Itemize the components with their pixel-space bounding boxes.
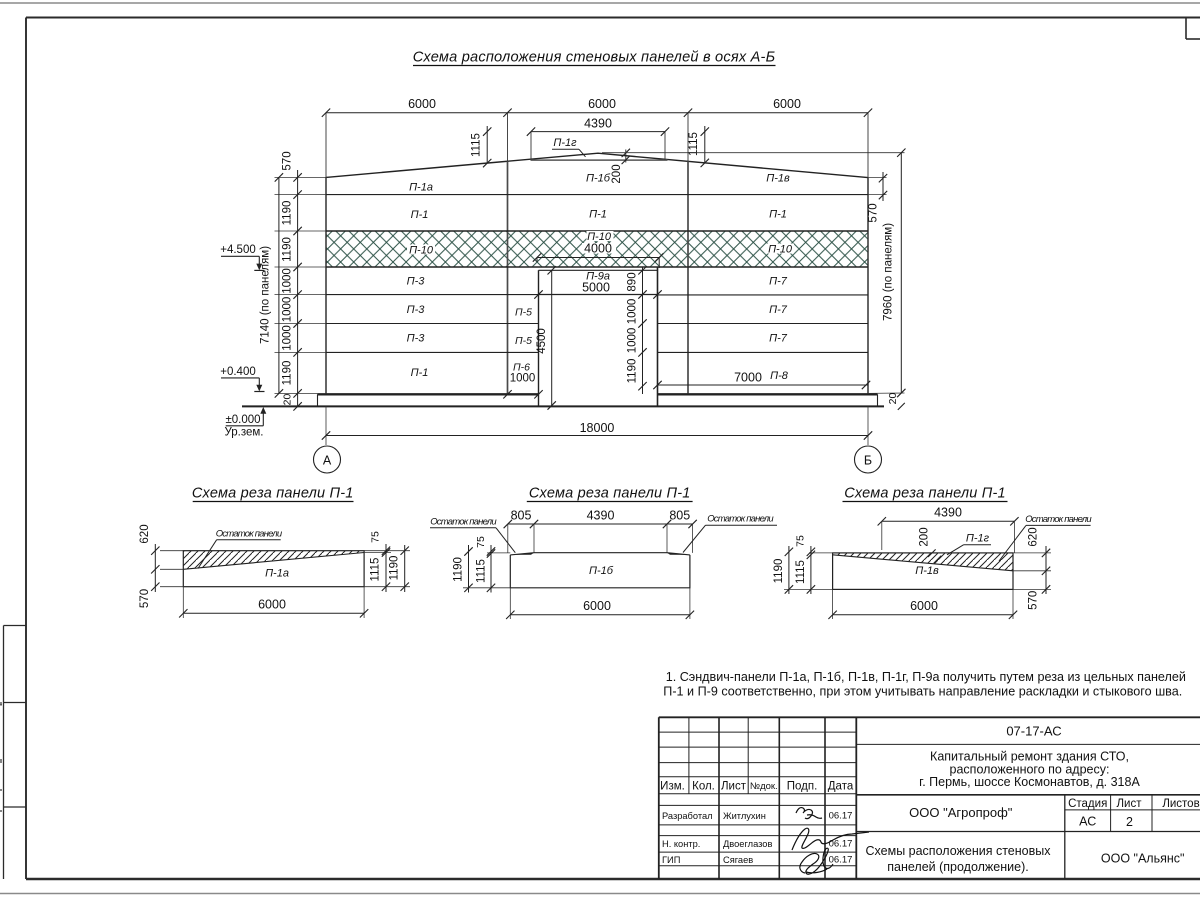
svg-text:Лист: Лист — [1117, 798, 1143, 810]
svg-text:Ур.зем.: Ур.зем. — [224, 427, 263, 439]
svg-text:Схема реза панели П-1: Схема реза панели П-1 — [529, 486, 691, 502]
svg-text:1115: 1115 — [370, 558, 382, 582]
svg-text:5000: 5000 — [582, 281, 610, 295]
svg-text:П-5: П-5 — [515, 335, 532, 347]
svg-text:Остаток панели: Остаток панели — [707, 514, 774, 525]
svg-text:890: 890 — [627, 272, 639, 291]
svg-text:1000: 1000 — [627, 328, 639, 354]
svg-text:П-10: П-10 — [768, 244, 793, 256]
svg-text:4390: 4390 — [934, 506, 962, 520]
svg-text:г. Пермь, шоссе Космонавтов, д: г. Пермь, шоссе Космонавтов, д. 318А — [919, 775, 1140, 789]
svg-text:Сягаев: Сягаев — [723, 855, 753, 865]
svg-text:200: 200 — [919, 527, 931, 546]
svg-text:2: 2 — [1126, 815, 1133, 829]
svg-text:П-1: П-1 — [769, 209, 787, 221]
svg-text:Остаток панели: Остаток панели — [430, 517, 497, 528]
svg-text:П-1а: П-1а — [409, 182, 433, 194]
svg-text:805: 805 — [669, 509, 690, 523]
svg-text:П-5: П-5 — [515, 307, 532, 319]
svg-text:ГИП: ГИП — [662, 855, 680, 865]
svg-text:Схема реза панели П-1: Схема реза панели П-1 — [192, 486, 354, 502]
svg-text:7960 (по панелям): 7960 (по панелям) — [883, 223, 895, 321]
svg-text:1190: 1190 — [453, 557, 465, 582]
svg-text:Стадия: Стадия — [1068, 798, 1107, 810]
svg-text:П-10: П-10 — [409, 245, 434, 257]
svg-text:1000: 1000 — [627, 299, 639, 325]
svg-text:805: 805 — [511, 509, 532, 523]
svg-text:Листов: Листов — [1162, 798, 1199, 810]
svg-text:Схема реза панели П-1: Схема реза панели П-1 — [844, 486, 1006, 502]
svg-text:06.17: 06.17 — [829, 854, 853, 865]
svg-text:1115: 1115 — [471, 133, 483, 157]
svg-text:Схема расположения стеновых па: Схема расположения стеновых панелей в ос… — [413, 50, 776, 66]
svg-text:П-3: П-3 — [407, 304, 426, 316]
svg-text:1000: 1000 — [282, 325, 294, 351]
svg-text:Разработал: Разработал — [662, 811, 713, 821]
svg-text:Дата: Дата — [828, 781, 854, 793]
svg-text:Лист: Лист — [721, 781, 747, 793]
svg-text:620: 620 — [1028, 527, 1040, 546]
svg-text:6000: 6000 — [583, 599, 611, 613]
svg-text:П-7: П-7 — [769, 276, 788, 288]
svg-text:4000: 4000 — [584, 242, 612, 256]
svg-text:18000: 18000 — [580, 421, 615, 435]
svg-text:Подп.: Подп. — [787, 781, 818, 793]
svg-text:1115: 1115 — [476, 559, 488, 583]
svg-text:Изм.: Изм. — [660, 781, 685, 793]
svg-text:панелей (продолжение).: панелей (продолжение). — [887, 860, 1028, 874]
svg-text:П-1г: П-1г — [966, 533, 990, 545]
svg-text:ООО "Агропроф": ООО "Агропроф" — [909, 805, 1013, 820]
svg-text:75: 75 — [370, 531, 382, 543]
svg-text:570: 570 — [139, 589, 151, 608]
svg-text:1000: 1000 — [282, 297, 294, 323]
svg-text:6000: 6000 — [408, 97, 436, 111]
svg-text:570: 570 — [282, 151, 294, 170]
svg-text:4390: 4390 — [584, 117, 612, 131]
svg-text:1000: 1000 — [282, 268, 294, 294]
svg-text:А: А — [323, 454, 332, 468]
svg-text:1. Сэндвич-панели П-1а, П-1б,: 1. Сэндвич-панели П-1а, П-1б, П-1в, П-1г… — [666, 670, 1186, 684]
svg-text:П-1 и П-9 соответственно, при: П-1 и П-9 соответственно, при этом учиты… — [663, 684, 1182, 698]
svg-text:1190: 1190 — [282, 237, 294, 262]
svg-text:1000: 1000 — [510, 373, 536, 385]
svg-text:П-1б: П-1б — [586, 173, 611, 185]
svg-text:200: 200 — [611, 164, 623, 183]
svg-text:20: 20 — [282, 394, 294, 406]
svg-text:Н. контр.: Н. контр. — [662, 839, 700, 849]
svg-text:Капитальный ремонт здания СТО,: Капитальный ремонт здания СТО, — [930, 749, 1129, 763]
svg-text:06.17: 06.17 — [829, 811, 853, 822]
svg-text:7140 (по панелям): 7140 (по панелям) — [260, 246, 272, 344]
svg-text:П-3: П-3 — [407, 276, 426, 288]
svg-text:6000: 6000 — [258, 598, 286, 612]
svg-text:П-7: П-7 — [769, 304, 788, 316]
svg-text:1190: 1190 — [282, 361, 294, 386]
svg-text:1190: 1190 — [389, 556, 401, 581]
svg-text:+4.500: +4.500 — [220, 244, 256, 256]
svg-text:1190: 1190 — [773, 559, 785, 584]
svg-text:6000: 6000 — [588, 97, 616, 111]
svg-text:20: 20 — [887, 393, 899, 405]
svg-text:П-1а: П-1а — [265, 568, 289, 580]
svg-text:П-1в: П-1в — [915, 565, 939, 577]
svg-text:П-8: П-8 — [770, 370, 789, 382]
svg-text:4390: 4390 — [587, 509, 615, 523]
svg-text:6000: 6000 — [773, 97, 801, 111]
svg-text:П-1в: П-1в — [766, 173, 790, 185]
svg-text:570: 570 — [1028, 591, 1040, 610]
svg-text:6000: 6000 — [910, 599, 938, 613]
svg-text:1115: 1115 — [795, 560, 807, 584]
svg-text:№док.: №док. — [750, 781, 778, 792]
svg-text:75: 75 — [475, 536, 487, 548]
svg-text:ООО "Альянс": ООО "Альянс" — [1101, 852, 1185, 866]
svg-text:П-1г: П-1г — [553, 137, 577, 149]
svg-text:Житлухин: Житлухин — [723, 811, 766, 821]
svg-text:АС: АС — [1079, 815, 1096, 829]
svg-text:Кол.: Кол. — [692, 781, 715, 793]
svg-text:±0.000: ±0.000 — [225, 414, 260, 426]
svg-text:П-7: П-7 — [769, 333, 788, 345]
svg-text:П-1: П-1 — [589, 209, 607, 221]
svg-text:Двоеглазов: Двоеглазов — [723, 839, 772, 849]
svg-text:П-1: П-1 — [411, 209, 429, 221]
svg-text:П-3: П-3 — [407, 333, 426, 345]
svg-text:4500: 4500 — [536, 328, 548, 354]
svg-text:1190: 1190 — [282, 201, 294, 226]
svg-text:Б: Б — [864, 454, 872, 468]
svg-text:620: 620 — [139, 524, 151, 543]
svg-text:П-1б: П-1б — [589, 565, 614, 577]
svg-text:75: 75 — [795, 535, 807, 547]
svg-text:7000: 7000 — [734, 370, 762, 384]
svg-text:+0.400: +0.400 — [220, 366, 256, 378]
svg-text:1190: 1190 — [627, 359, 639, 384]
svg-text:07-17-АС: 07-17-АС — [1006, 724, 1061, 739]
svg-text:П-1: П-1 — [411, 367, 429, 379]
svg-text:Остаток панели: Остаток панели — [1025, 514, 1092, 525]
svg-text:570: 570 — [868, 203, 880, 222]
svg-text:Остаток панели: Остаток панели — [216, 529, 283, 540]
svg-text:Схемы расположения стеновых: Схемы расположения стеновых — [866, 844, 1052, 858]
